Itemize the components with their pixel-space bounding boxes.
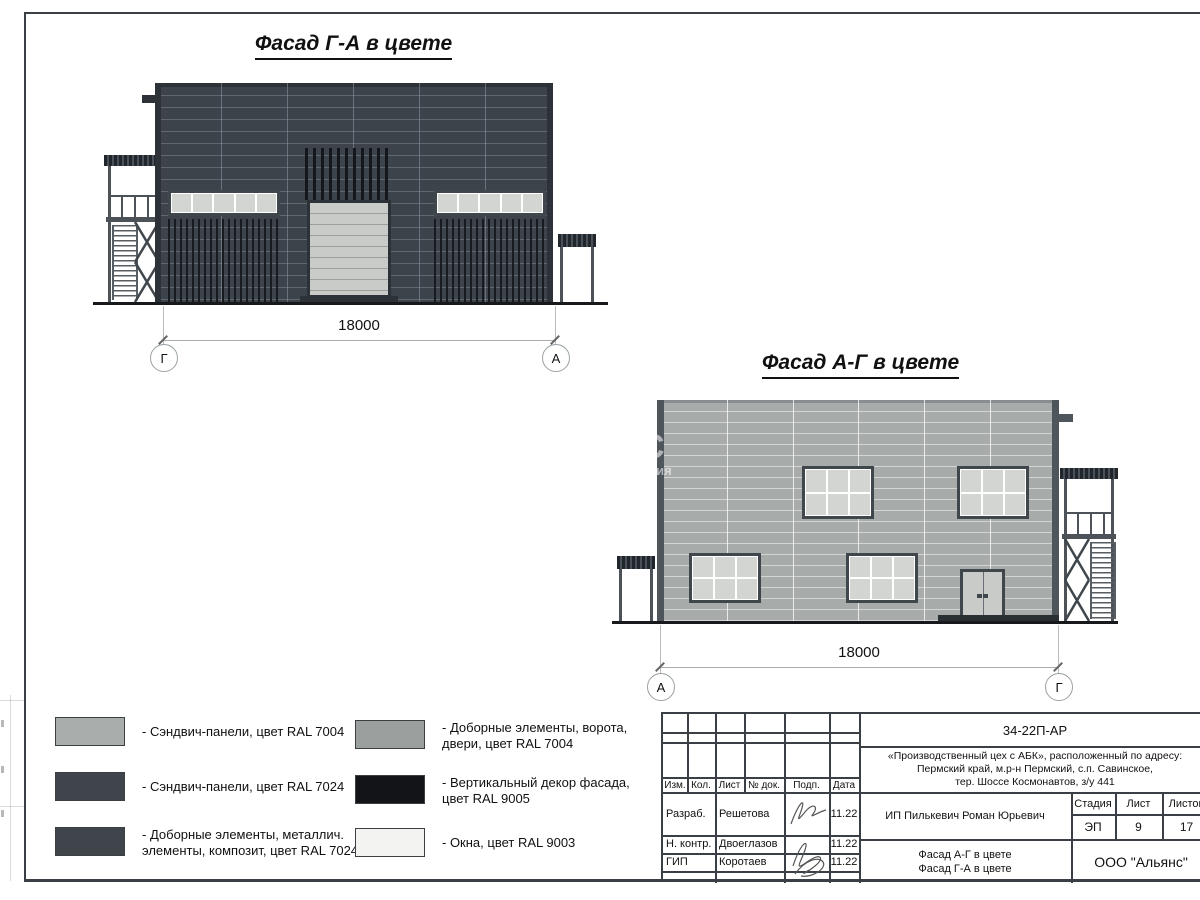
stamp-line <box>1071 814 1200 816</box>
window-band-right <box>434 190 546 216</box>
watermark-logo: С <box>640 428 665 467</box>
vertical-decor <box>305 148 393 200</box>
axis-bubble-a: А <box>542 344 570 372</box>
facade1-title: Фасад Г-А в цвете <box>255 32 452 60</box>
frame-left <box>24 12 26 881</box>
client-name: ИП Пилькевич Роман Юрьевич <box>859 810 1071 822</box>
legend-label: - Вертикальный декор фасада, цвет RAL 90… <box>442 775 630 807</box>
stamp-line <box>663 742 859 744</box>
stamp-line <box>663 835 859 837</box>
stamp-line <box>859 839 1200 841</box>
facade1-dimension: 18000 <box>309 317 409 334</box>
axis-letter: А <box>657 680 666 695</box>
legend-label: - Сэндвич-панели, цвет RAL 7024 <box>142 779 344 795</box>
canopy-roof <box>558 234 596 247</box>
legend-text: - Сэндвич-панели, цвет RAL 7004 <box>142 724 344 740</box>
stamp-line <box>663 871 859 873</box>
frame-top <box>24 12 1200 14</box>
facade2-ground-line <box>612 621 1118 624</box>
doc-number: 34-22П-АР <box>859 723 1200 738</box>
project-address: «Производственный цех с АБК», расположен… <box>863 750 1200 789</box>
col-izm: Изм. <box>663 780 687 791</box>
facade2-stair-tower <box>1062 468 1116 621</box>
axis-letter: Г <box>1055 680 1062 695</box>
company-name: ООО "Альянс" <box>1071 854 1200 870</box>
date-nkontr: 11.22 <box>829 838 859 850</box>
facade2-dimension: 18000 <box>809 644 909 661</box>
legend-swatch-ral9003 <box>355 828 425 857</box>
facade1-stair-tower <box>106 155 162 302</box>
extension-line <box>163 306 164 348</box>
sheets-value: 17 <box>1162 820 1200 834</box>
role-razrab: Разраб. <box>666 808 715 820</box>
date-gip: 11.22 <box>829 856 859 868</box>
canopy-post <box>591 247 594 302</box>
legend-label: - Сэндвич-панели, цвет RAL 7004 <box>142 724 344 740</box>
sectional-gate <box>307 200 391 298</box>
margin-stamp-mark <box>1 810 4 817</box>
name-razrab: Решетова <box>719 808 784 820</box>
facade1-roof-flag <box>142 95 157 103</box>
striped-cladding-right <box>434 219 546 302</box>
parapet-coping <box>155 83 553 87</box>
canopy-post <box>619 569 622 621</box>
drawing-sheet: Фасад Г-А в цвете <box>0 0 1200 900</box>
legend-swatch-ral7004-doors <box>355 720 425 749</box>
facade1-ground-line <box>93 302 608 305</box>
corner-trim-right <box>1052 400 1059 621</box>
window-upper-left <box>802 466 874 519</box>
sheet-title-line: Фасад Г-А в цвете <box>859 862 1071 876</box>
watermark-text: ания <box>641 463 672 478</box>
sheets-label: Листов <box>1162 798 1200 810</box>
canopy-post <box>650 569 653 621</box>
legend-swatch-ral7004 <box>55 717 125 746</box>
stamp-line <box>663 777 859 779</box>
sheet-title-line: Фасад А-Г в цвете <box>859 848 1071 862</box>
stage-label: Стадия <box>1071 798 1115 810</box>
legend-text: двери, цвет RAL 7004 <box>442 736 627 752</box>
legend-text: - Окна, цвет RAL 9003 <box>442 835 575 851</box>
axis-bubble-g: Г <box>1045 673 1073 701</box>
corner-trim-right <box>547 83 553 302</box>
margin-stamp-mark <box>1 766 4 773</box>
window-lower-right <box>846 553 918 603</box>
stair-bracing <box>1064 539 1090 621</box>
canopy-roof <box>617 556 655 569</box>
role-gip: ГИП <box>666 856 715 868</box>
project-line: Пермский край, м.р-н Пермский, с.п. Сави… <box>863 763 1200 776</box>
striped-cladding-left <box>168 219 280 302</box>
sheet-title: Фасад А-Г в цвете Фасад Г-А в цвете <box>859 848 1071 876</box>
col-data: Дата <box>829 780 859 791</box>
panel-joint <box>924 400 925 621</box>
facade2-title: Фасад А-Г в цвете <box>762 351 959 379</box>
sheet-label: Лист <box>1115 798 1162 810</box>
axis-bubble-g: Г <box>150 344 178 372</box>
stamp-line <box>663 853 859 855</box>
panel-joint <box>287 83 288 302</box>
panel-joint <box>793 400 794 621</box>
legend-text: - Доборные элементы, металлич. <box>142 827 358 843</box>
sheet-value: 9 <box>1115 820 1162 834</box>
window-upper-right <box>957 466 1029 519</box>
signature <box>785 794 829 834</box>
stamp-line <box>859 746 1200 748</box>
facade1-canopy <box>558 234 596 302</box>
corner-trim-left <box>155 83 161 302</box>
col-list: Лист <box>715 780 744 791</box>
extension-line <box>555 306 556 348</box>
margin-line <box>0 700 24 701</box>
legend-label: - Окна, цвет RAL 9003 <box>442 835 575 851</box>
legend-text: элементы, композит, цвет RAL 7024 <box>142 843 358 859</box>
stage-value: ЭП <box>1071 820 1115 834</box>
stair-post <box>108 166 111 302</box>
legend-text: - Доборные элементы, ворота, <box>442 720 627 736</box>
col-ndok: № док. <box>744 780 784 791</box>
facade1-building <box>155 83 553 302</box>
facade2-canopy <box>617 556 655 621</box>
axis-bubble-a: А <box>647 673 675 701</box>
facade2-roof-flag <box>1058 414 1073 422</box>
double-door <box>960 569 1005 621</box>
stair-roof <box>1060 468 1118 479</box>
legend-swatch-ral7024 <box>55 772 125 801</box>
col-podp: Подп. <box>784 780 829 791</box>
axis-letter: Г <box>160 351 167 366</box>
legend-swatch-ral9005 <box>355 775 425 804</box>
stamp-line <box>663 792 1200 794</box>
panel-joint <box>419 83 420 302</box>
dimension-line <box>660 667 1058 668</box>
stair-treads <box>1090 542 1116 619</box>
stamp-line <box>715 714 717 883</box>
stamp-line <box>663 732 859 734</box>
margin-line <box>0 806 24 807</box>
canopy-post <box>560 247 563 302</box>
dimension-line <box>163 340 555 341</box>
title-block: Изм. Кол. Лист № док. Подп. Дата Разраб.… <box>661 712 1200 881</box>
legend-label: - Доборные элементы, металлич. элементы,… <box>142 827 358 859</box>
name-gip: Коротаев <box>719 856 784 868</box>
project-line: тер. Шоссе Космонавтов, з/у 441 <box>863 776 1200 789</box>
legend-text: цвет RAL 9005 <box>442 791 630 807</box>
door-handle <box>977 594 982 598</box>
col-kol: Кол. <box>687 780 715 791</box>
date-razrab: 11.22 <box>829 808 859 820</box>
margin-line <box>10 695 11 881</box>
name-nkontr: Двоеглазов <box>719 838 784 850</box>
legend-label: - Доборные элементы, ворота, двери, цвет… <box>442 720 627 752</box>
legend-swatch-ral7024-metal <box>55 827 125 856</box>
role-nkontr: Н. контр. <box>666 838 715 850</box>
signature <box>785 832 829 882</box>
legend-text: - Сэндвич-панели, цвет RAL 7024 <box>142 779 344 795</box>
window-band-left <box>168 190 280 216</box>
door-handle <box>983 594 988 598</box>
project-line: «Производственный цех с АБК», расположен… <box>863 750 1200 763</box>
axis-letter: А <box>552 351 561 366</box>
facade2-building <box>657 400 1059 621</box>
margin-stamp-mark <box>1 720 4 727</box>
legend-text: - Вертикальный декор фасада, <box>442 775 630 791</box>
window-lower-left <box>689 553 761 603</box>
